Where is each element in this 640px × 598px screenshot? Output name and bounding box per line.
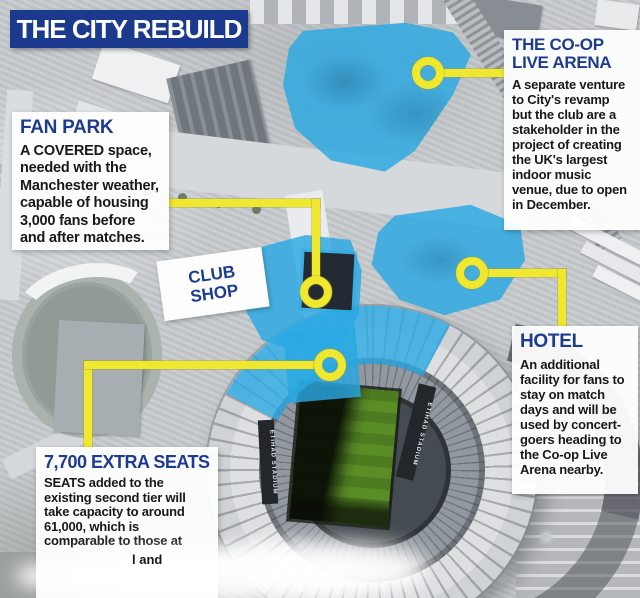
hotel-callout-line-h xyxy=(487,269,566,277)
coop-arena-box: THE CO-OP LIVE ARENA A separate venture … xyxy=(504,30,640,230)
fanpark-callout-line-h xyxy=(166,199,320,207)
extra-seats-body-fragment: l and xyxy=(132,552,162,567)
censor-smudge xyxy=(200,540,430,588)
fanpark-callout-ring xyxy=(300,276,332,308)
seats-callout-line-h xyxy=(84,361,314,369)
fanpark-callout-line-v xyxy=(312,199,320,277)
fan-park-body: A COVERED space, needed with the Manches… xyxy=(20,143,161,248)
building xyxy=(594,0,639,31)
hotel-body: An additional facility for fans to stay … xyxy=(520,357,630,477)
extra-seats-body: SEATS added to the existing second tier … xyxy=(44,476,210,549)
seats-callout-ring xyxy=(314,349,346,381)
coop-callout-line xyxy=(441,69,507,77)
coop-callout-ring xyxy=(412,57,444,89)
coop-arena-body: A separate venture to City's revamp but … xyxy=(512,77,632,212)
hotel-callout-ring xyxy=(456,257,488,289)
infographic-canvas: ETIHAD STADIUM ETIHAD STADIUM THE CITY R… xyxy=(0,0,640,598)
fan-park-box: FAN PARK A COVERED space, needed with th… xyxy=(12,112,169,250)
hotel-box: HOTEL An additional facility for fans to… xyxy=(512,326,638,494)
sculpture-mast xyxy=(541,532,551,542)
title-bar: THE CITY REBUILD xyxy=(10,10,248,48)
hotel-heading: HOTEL xyxy=(520,332,630,353)
extra-seats-heading: 7,700 EXTRA SEATS xyxy=(44,453,210,472)
page-title: THE CITY REBUILD xyxy=(17,14,242,45)
building xyxy=(92,41,180,104)
seats-callout-line-v xyxy=(84,361,92,450)
club-shop-label: CLUB SHOP xyxy=(181,261,246,307)
fan-park-heading: FAN PARK xyxy=(20,118,161,139)
hotel-callout-line-v xyxy=(558,269,566,327)
industrial-units-strip xyxy=(250,0,465,24)
coop-arena-heading: THE CO-OP LIVE ARENA xyxy=(512,36,617,73)
